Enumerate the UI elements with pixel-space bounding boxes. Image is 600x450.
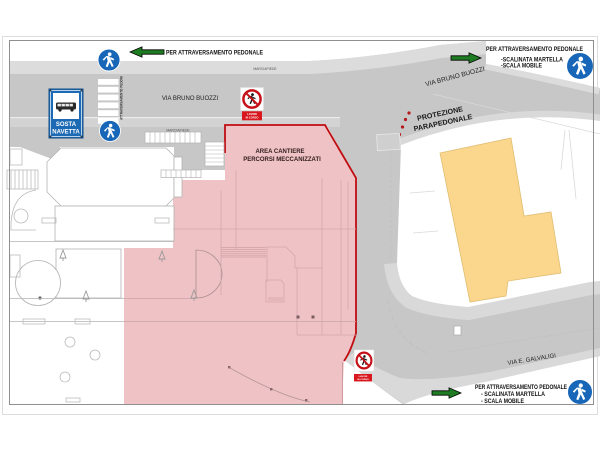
svg-text:VIA BRUNO BUOZZI: VIA BRUNO BUOZZI — [162, 96, 219, 102]
svg-text:MARCIAPIEDE: MARCIAPIEDE — [166, 129, 190, 133]
svg-text:PER ATTRAVERSAMENTO PEDONALE: PER ATTRAVERSAMENTO PEDONALE — [475, 385, 567, 391]
svg-text:ATTRAVERSAMENTO PEDONI: ATTRAVERSAMENTO PEDONI — [120, 76, 124, 120]
svg-text:MARCIAPIEDE: MARCIAPIEDE — [253, 67, 277, 71]
svg-text:NAVETTA: NAVETTA — [52, 130, 80, 136]
svg-text:PERCORSI MECCANIZZATI: PERCORSI MECCANIZZATI — [243, 157, 321, 163]
svg-text:PER ATTRAVERSAMENTO PEDONALE: PER ATTRAVERSAMENTO PEDONALE — [166, 51, 263, 57]
svg-text:SOSTA: SOSTA — [56, 122, 77, 128]
svg-text:-SCALA MOBILE: -SCALA MOBILE — [501, 64, 542, 70]
svg-text:- SCALINATA MARTELLA: - SCALINATA MARTELLA — [481, 392, 546, 398]
svg-text:PER ATTRAVERSAMENTO PEDONALE: PER ATTRAVERSAMENTO PEDONALE — [486, 47, 583, 53]
svg-text:AREA CANTIERE: AREA CANTIERE — [255, 149, 304, 155]
